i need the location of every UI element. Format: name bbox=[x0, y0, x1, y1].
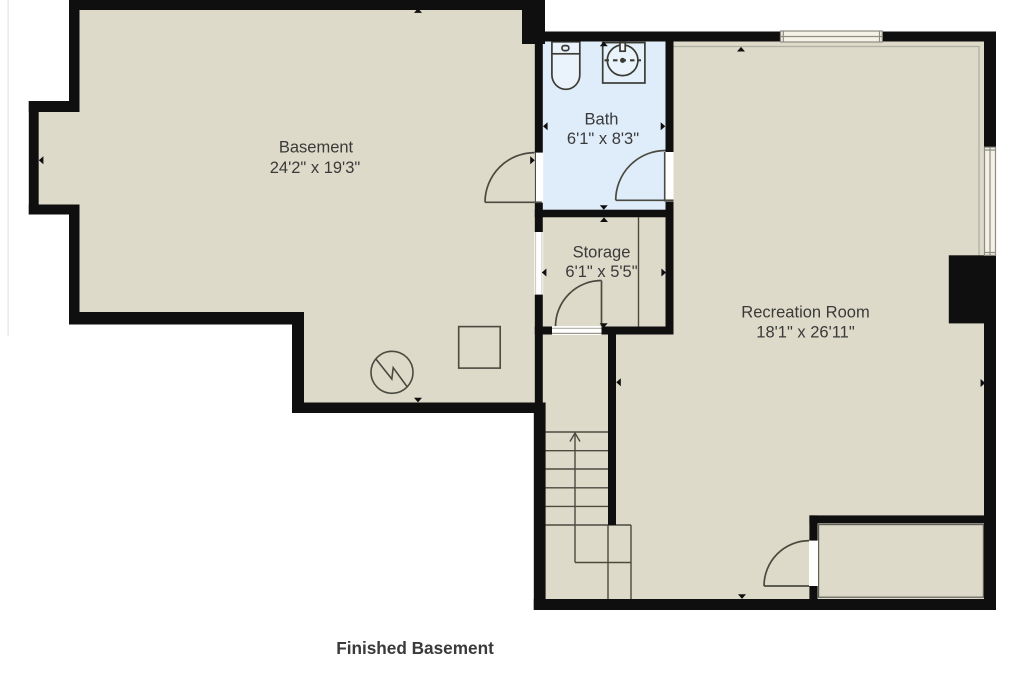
svg-text:Basement: Basement bbox=[279, 139, 354, 157]
svg-text:Finished Basement: Finished Basement bbox=[336, 638, 494, 658]
svg-text:Recreation Room: Recreation Room bbox=[741, 304, 869, 322]
svg-text:Bath: Bath bbox=[585, 111, 619, 129]
svg-text:6'1" x 5'5": 6'1" x 5'5" bbox=[565, 263, 637, 281]
svg-text:24'2" x 19'3": 24'2" x 19'3" bbox=[270, 159, 361, 177]
svg-text:Storage: Storage bbox=[573, 244, 631, 262]
svg-text:6'1" x 8'3": 6'1" x 8'3" bbox=[567, 130, 639, 148]
svg-text:18'1" x 26'11": 18'1" x 26'11" bbox=[756, 324, 855, 342]
